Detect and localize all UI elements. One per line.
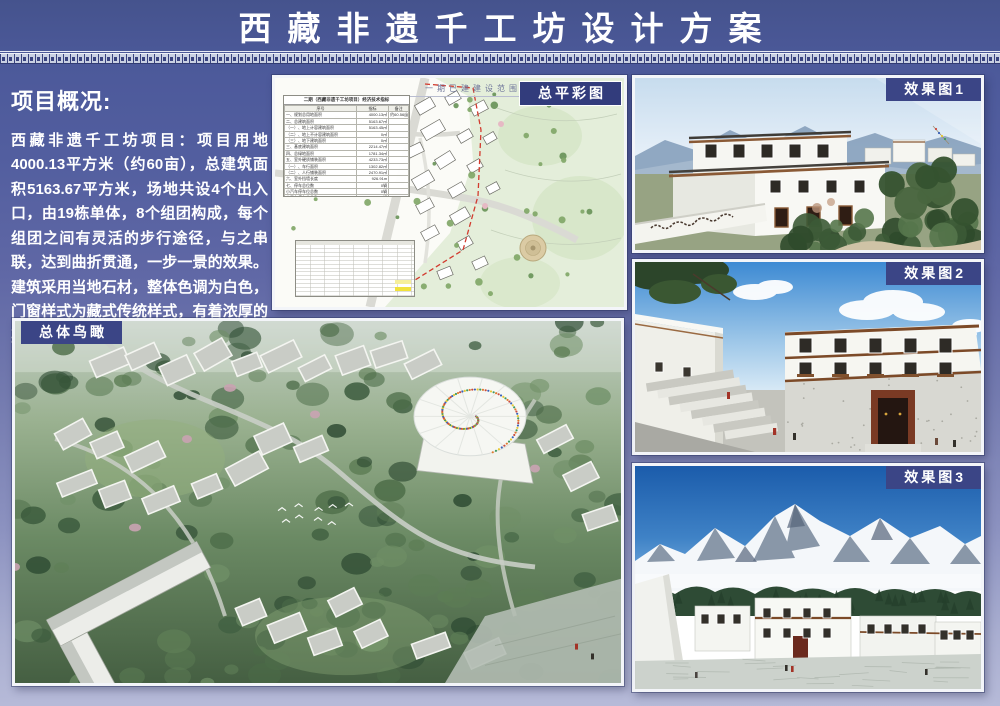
table-highlight-cell (395, 280, 411, 284)
render1-label: 效果图1 (886, 78, 981, 101)
ornament-motif-strip (0, 53, 1000, 64)
economic-indicators-table: 二期（西藏非遗千工坊项目）经济技术指标 序号指标备注一、规划总用地面积4000.… (283, 95, 410, 197)
overview-body: 西藏非遗千工坊项目：项目用地4000.13平方米（约60亩），总建筑面积5163… (11, 129, 268, 349)
overview-heading: 项目概况: (11, 84, 268, 116)
poster-header: 西藏非遗千工坊设计方案 (0, 0, 1000, 51)
ornament-border (0, 51, 1000, 64)
economic-indicators-table-grid: 序号指标备注一、规划总用地面积4000.13㎡约60.56亩二、总建筑面积516… (284, 105, 409, 197)
render2-image (635, 262, 981, 452)
site-plan-panel: 一期已建建设范围 二期（西藏非遗千工坊项目）经济技术指标 序号指标备注一、规划总… (272, 75, 627, 310)
site-plan-label: 总平彩图 (519, 81, 622, 106)
design-poster: 西藏非遗千工坊设计方案 项目概况: 西藏非遗千工坊项目：项目用地4000.13平… (0, 0, 1000, 706)
aerial-view-panel: 总体鸟瞰 (12, 318, 624, 686)
economic-indicators-table-title: 二期（西藏非遗千工坊项目）经济技术指标 (284, 96, 409, 105)
render3-panel: 效果图3 (632, 463, 984, 692)
render3-image (635, 466, 981, 689)
aerial-view-label: 总体鸟瞰 (21, 321, 122, 344)
project-overview: 项目概况: 西藏非遗千工坊项目：项目用地4000.13平方米（约60亩），总建筑… (11, 84, 268, 349)
poster-title: 西藏非遗千工坊设计方案 (223, 2, 778, 50)
table-highlight-cell (395, 287, 411, 291)
ornament-top-line (0, 51, 1000, 52)
render2-label: 效果图2 (886, 262, 981, 285)
render1-panel: 效果图1 (632, 75, 984, 253)
render1-image (635, 78, 981, 250)
aerial-view-image (15, 321, 621, 683)
building-indicators-table (295, 240, 415, 297)
render3-label: 效果图3 (886, 466, 981, 489)
render2-panel: 效果图2 (632, 259, 984, 455)
